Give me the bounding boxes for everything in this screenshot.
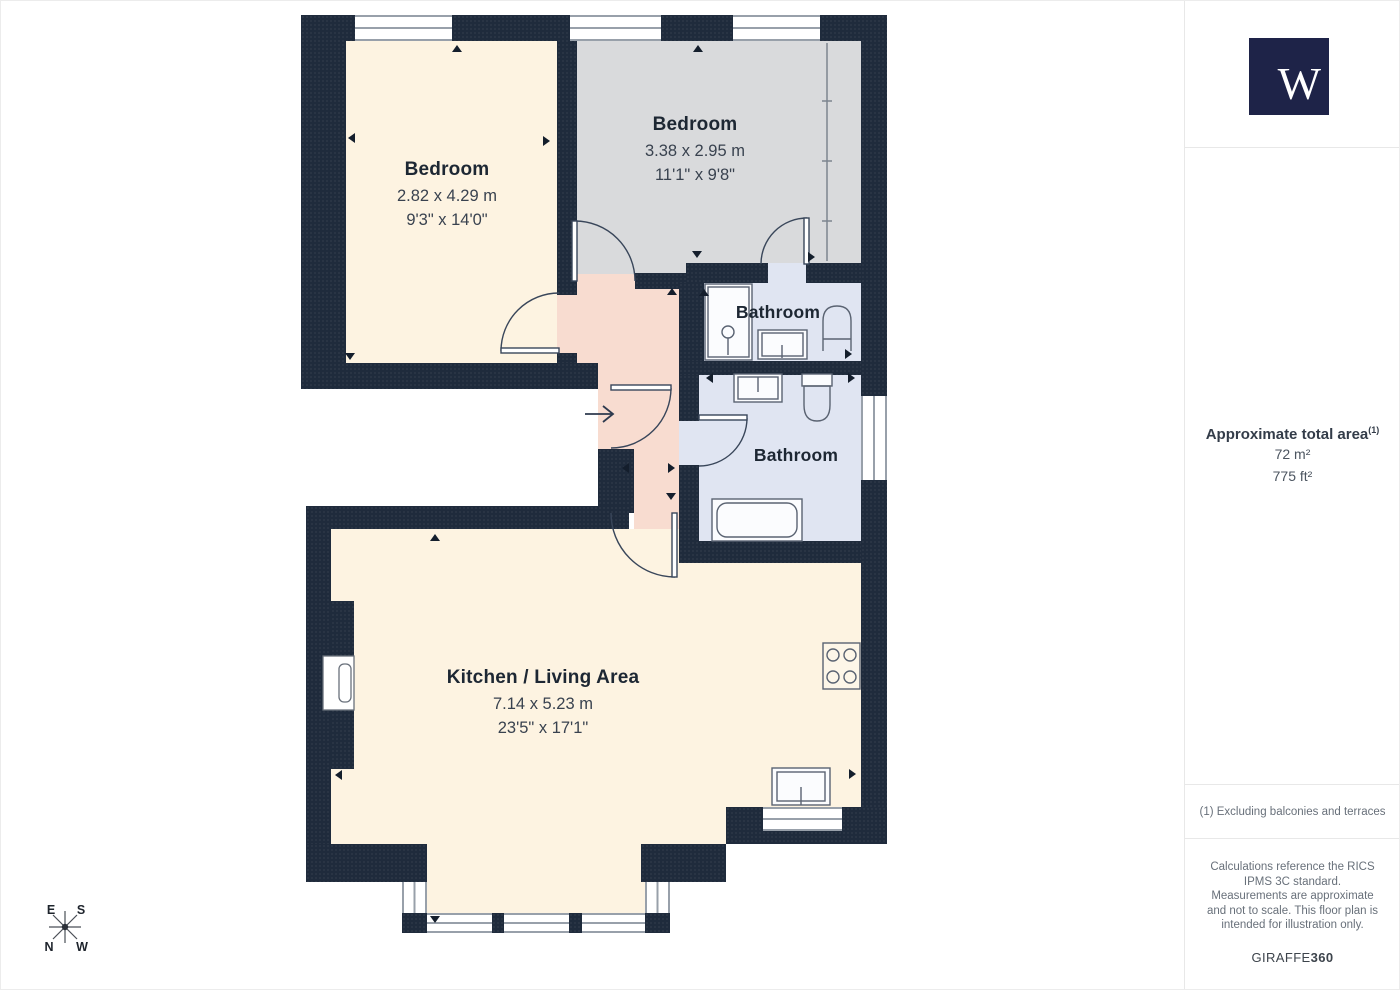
wall-segment [306,506,331,882]
window [355,15,452,41]
window [402,882,427,913]
wall-segment [306,844,427,882]
room-name: Bedroom [347,159,547,181]
doorway-bedroom-left [557,295,577,353]
room-label-bathroom-bottom: Bathroom [731,445,861,469]
wall-segment [402,913,427,933]
wall-segment [861,480,887,831]
room-name: Bedroom [595,114,795,136]
wall-segment [679,375,699,421]
wall-segment [306,506,629,529]
footnote: (1) Excluding balconies and terraces [1185,784,1400,839]
brand-bold: 360 [1311,950,1334,965]
room-dimension-imperial: 11'1" x 9'8" [595,163,795,187]
compass-south-label: S [77,903,85,917]
window-mullion [492,913,504,933]
compass-icon: E S N W [44,903,88,954]
room-kitchen-floor [679,563,862,807]
room-dimension-imperial: 9'3" x 14'0" [347,208,547,232]
total-area-metric: 72 m² [1185,443,1400,465]
compass-east-label: E [47,903,55,917]
wall-segment [301,15,346,389]
disclaimer-text: Calculations reference the RICS IPMS 3C … [1205,860,1380,933]
window [861,396,887,480]
giraffe360-brand: GIRAFFE360 [1185,950,1400,965]
brand-logo-letter: W [1278,61,1321,107]
wall-segment [645,913,670,933]
window [733,15,820,41]
window-mullion [569,913,582,933]
hallway-floor [598,389,679,449]
bay-window-floor [427,844,645,913]
info-sidebar: W Approximate total area(1) 72 m² 775 ft… [1184,1,1400,989]
compass-west-label: W [76,940,88,954]
total-area-superscript: (1) [1368,425,1379,435]
room-name: Kitchen / Living Area [423,667,663,689]
room-label-kitchen: Kitchen / Living Area 7.14 x 5.23 m 23'5… [423,667,663,740]
room-kitchen-floor [679,807,726,844]
total-area-title-text: Approximate total area [1206,426,1369,443]
bay-window [427,913,645,933]
room-dimension-metric: 2.82 x 4.29 m [347,184,547,208]
wall-segment [679,541,862,563]
logo-section: W [1185,1,1400,148]
floorplan-page: E S N W Bedroom 2.82 x 4.29 m 9'3" x 14'… [0,0,1400,990]
total-area-imperial: 775 ft² [1185,465,1400,487]
wall-segment [806,263,861,283]
wall-segment [598,449,634,513]
hallway-floor [634,449,679,529]
room-dimension-metric: 7.14 x 5.23 m [423,692,663,716]
doorway-bathroom-bottom [679,421,699,465]
window [645,882,670,913]
window [763,807,842,831]
total-area-title: Approximate total area(1) [1185,425,1400,443]
room-name: Bathroom [731,445,861,466]
wall-chimney-breast [331,601,354,769]
wall-segment [557,15,577,295]
window [570,15,661,41]
brand-regular: GIRAFFE [1251,950,1310,965]
compass-north-label: N [44,940,53,954]
wall-segment [679,361,861,375]
room-dimension-metric: 3.38 x 2.95 m [595,139,795,163]
room-dimension-imperial: 23'5" x 17'1" [423,716,663,740]
wall-segment [679,465,699,541]
total-area-block: Approximate total area(1) 72 m² 775 ft² [1185,425,1400,487]
room-name: Bathroom [713,302,843,323]
wall-segment [641,844,726,882]
brand-logo: W [1249,38,1329,115]
wall-segment [861,15,887,396]
room-label-bathroom-top: Bathroom [713,302,843,326]
wall-segment [686,263,768,283]
disclaimer-section: Calculations reference the RICS IPMS 3C … [1185,838,1400,989]
room-label-bedroom-right: Bedroom 3.38 x 2.95 m 11'1" x 9'8" [595,114,795,187]
doorway-bathroom-top [768,263,806,283]
wall-segment [301,363,598,389]
room-label-bedroom-left: Bedroom 2.82 x 4.29 m 9'3" x 14'0" [347,159,547,232]
